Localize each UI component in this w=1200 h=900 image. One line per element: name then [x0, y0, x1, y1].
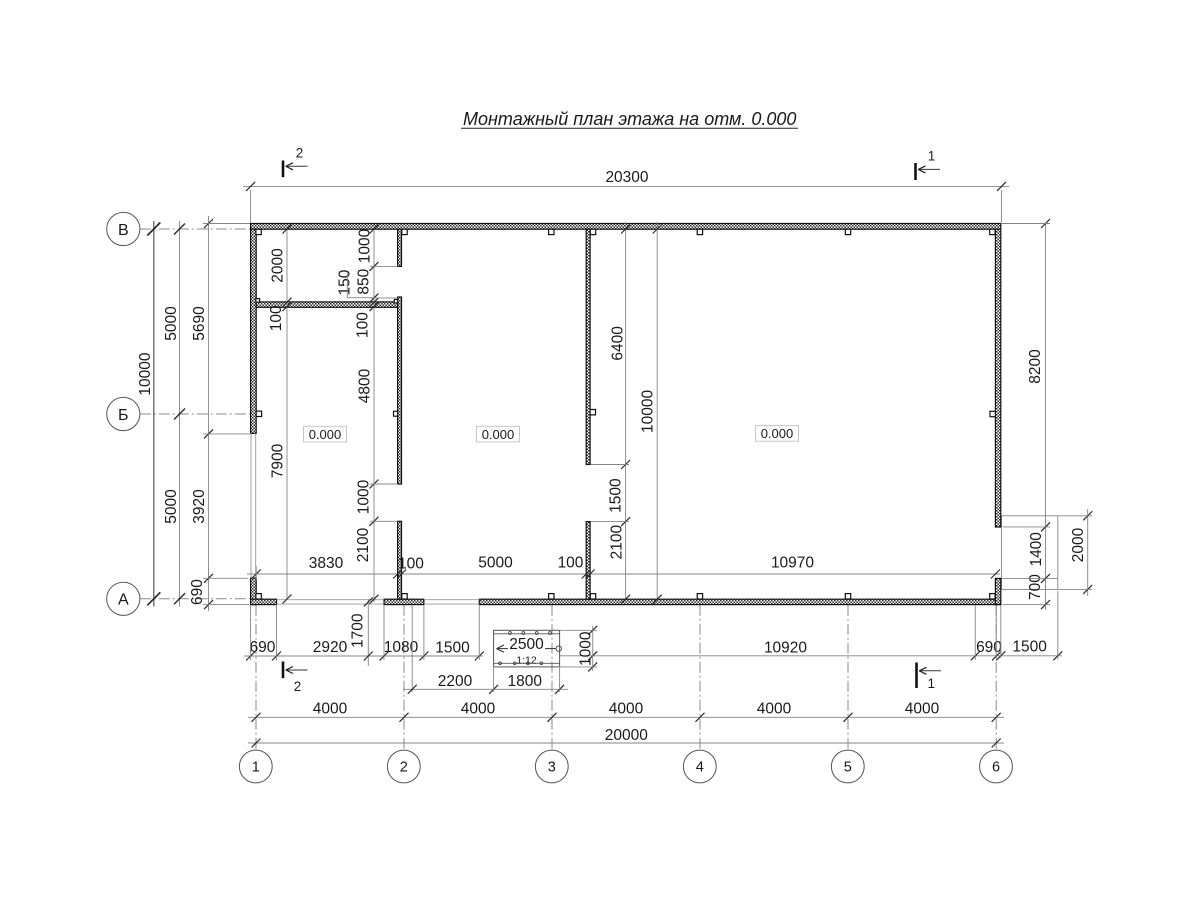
svg-text:4000: 4000: [757, 701, 792, 718]
svg-text:1: 1: [927, 676, 935, 691]
svg-text:1500: 1500: [435, 639, 470, 656]
svg-text:850: 850: [356, 268, 373, 294]
svg-text:5000: 5000: [163, 489, 180, 524]
svg-text:4000: 4000: [313, 701, 348, 718]
svg-text:5690: 5690: [191, 306, 208, 341]
svg-text:10920: 10920: [764, 640, 807, 657]
svg-text:690: 690: [189, 579, 206, 605]
svg-text:1:12: 1:12: [516, 654, 537, 666]
svg-text:4800: 4800: [357, 368, 374, 403]
svg-text:20300: 20300: [605, 169, 648, 186]
svg-text:А: А: [118, 592, 129, 609]
svg-text:4000: 4000: [461, 701, 496, 718]
svg-text:2000: 2000: [269, 248, 286, 283]
svg-text:1400: 1400: [1028, 532, 1045, 567]
svg-text:0.000: 0.000: [309, 427, 342, 442]
svg-text:690: 690: [250, 639, 276, 656]
svg-text:2200: 2200: [438, 673, 473, 690]
svg-text:10970: 10970: [771, 555, 814, 572]
svg-text:6: 6: [992, 760, 1000, 776]
svg-text:3: 3: [548, 760, 556, 776]
svg-text:5000: 5000: [163, 306, 180, 341]
svg-text:В: В: [118, 222, 129, 239]
svg-text:100: 100: [398, 556, 424, 573]
svg-text:2: 2: [296, 145, 304, 160]
svg-text:2: 2: [294, 679, 302, 694]
svg-text:1700: 1700: [349, 613, 366, 648]
svg-text:Б: Б: [118, 407, 129, 424]
svg-text:3830: 3830: [309, 555, 344, 572]
svg-text:10000: 10000: [137, 352, 154, 395]
svg-text:1000: 1000: [355, 479, 372, 514]
svg-text:1000: 1000: [357, 228, 374, 263]
svg-text:150: 150: [337, 269, 354, 295]
svg-text:6400: 6400: [610, 326, 627, 361]
svg-text:1500: 1500: [1012, 639, 1047, 656]
svg-text:1500: 1500: [608, 478, 625, 513]
svg-text:1: 1: [928, 148, 936, 163]
svg-text:20000: 20000: [605, 727, 648, 744]
svg-text:700: 700: [1027, 574, 1044, 600]
svg-text:2100: 2100: [609, 524, 626, 559]
svg-text:0.000: 0.000: [482, 427, 515, 442]
svg-text:4000: 4000: [905, 701, 940, 718]
svg-text:100: 100: [354, 312, 371, 338]
svg-text:2100: 2100: [355, 527, 372, 562]
svg-text:2500: 2500: [509, 636, 544, 653]
svg-text:5: 5: [844, 760, 852, 776]
svg-text:2920: 2920: [313, 639, 348, 656]
svg-text:690: 690: [976, 639, 1002, 656]
svg-text:1000: 1000: [578, 631, 595, 666]
svg-text:2000: 2000: [1070, 527, 1087, 562]
svg-text:3920: 3920: [191, 489, 208, 524]
svg-text:100: 100: [558, 555, 584, 572]
svg-text:1: 1: [252, 760, 260, 776]
svg-text:2: 2: [400, 760, 408, 776]
svg-text:5000: 5000: [478, 555, 513, 572]
svg-text:1800: 1800: [508, 673, 543, 690]
svg-text:8200: 8200: [1027, 349, 1044, 384]
svg-text:0.000: 0.000: [761, 426, 794, 441]
svg-text:100: 100: [268, 305, 285, 331]
svg-text:4: 4: [696, 760, 704, 776]
svg-text:Монтажный план этажа на отм. 0: Монтажный план этажа на отм. 0.000: [463, 109, 796, 129]
svg-text:7900: 7900: [269, 443, 286, 478]
svg-text:10000: 10000: [639, 389, 656, 432]
svg-text:1080: 1080: [384, 639, 419, 656]
svg-text:4000: 4000: [609, 701, 644, 718]
